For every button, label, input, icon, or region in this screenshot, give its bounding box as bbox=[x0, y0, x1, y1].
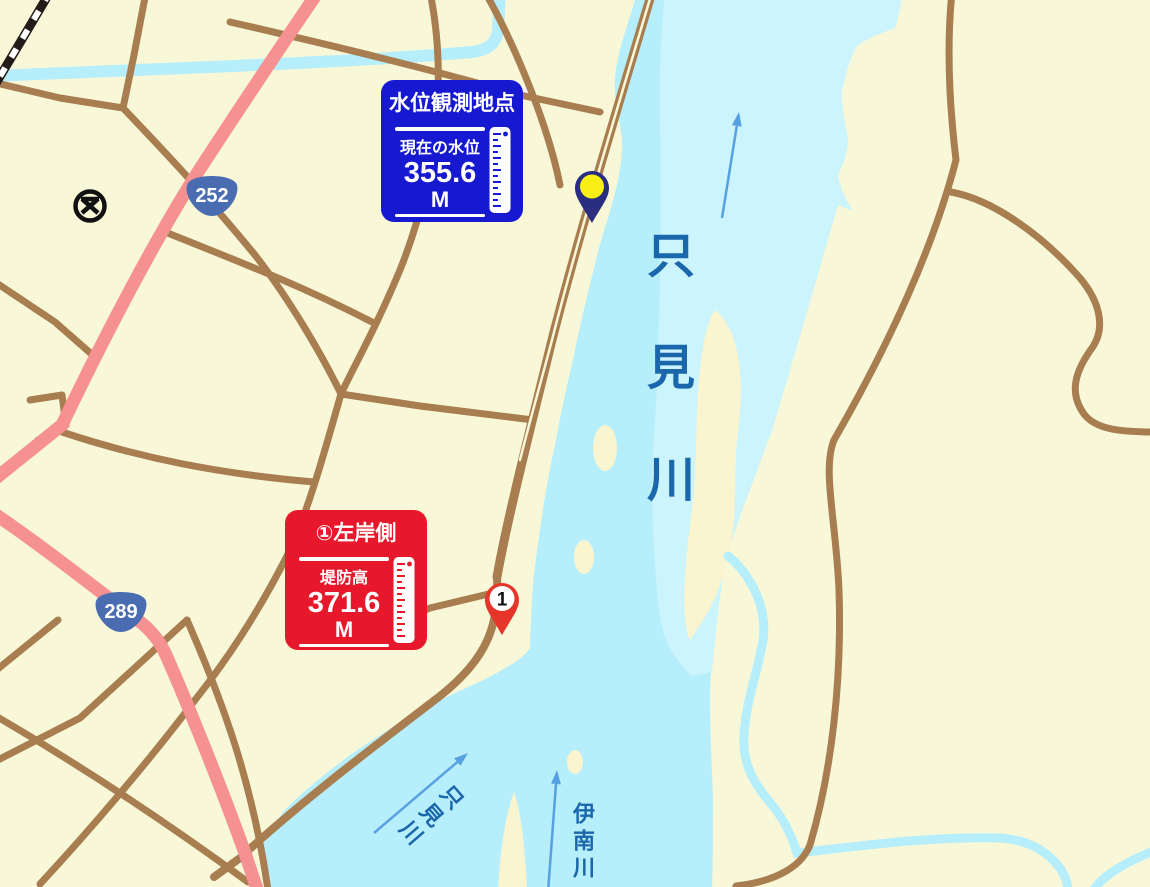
sandbar bbox=[593, 425, 617, 471]
road bbox=[62, 432, 314, 482]
map-symbol-icon bbox=[76, 192, 105, 221]
divider bbox=[395, 127, 485, 131]
info-box-title: 水位観測地点 bbox=[381, 87, 523, 117]
road bbox=[0, 280, 96, 358]
route-badge-252: 252 bbox=[184, 174, 240, 218]
divider bbox=[299, 644, 389, 648]
levee-height-info-box: ①左岸側 堤防高 371.6 M bbox=[285, 510, 427, 650]
stream bbox=[728, 556, 1068, 887]
road bbox=[160, 230, 372, 322]
sandbar bbox=[574, 540, 594, 574]
river-label-ina-branch: 伊南川 bbox=[566, 802, 598, 883]
flood-map-view: 只見川 只見川 伊南川 252 289 1 水位観測地点 bbox=[0, 0, 1150, 887]
ruler-icon bbox=[392, 557, 416, 643]
stream bbox=[1092, 850, 1150, 887]
divider bbox=[299, 557, 389, 561]
route-badge-289: 289 bbox=[93, 590, 149, 634]
route-number: 252 bbox=[195, 185, 228, 207]
ruler-icon bbox=[488, 127, 512, 213]
observation-point-pin[interactable] bbox=[575, 171, 609, 228]
info-box-title: ①左岸側 bbox=[285, 517, 427, 547]
water-level-unit: M bbox=[431, 189, 449, 211]
road bbox=[0, 82, 123, 108]
road bbox=[123, 0, 146, 108]
river-label-tadami: 只見川 bbox=[630, 230, 700, 566]
stream bbox=[0, 0, 500, 76]
road bbox=[951, 192, 1150, 432]
pin-number: 1 bbox=[497, 590, 508, 611]
divider bbox=[395, 214, 485, 218]
road bbox=[0, 620, 58, 672]
water-level-value: 355.6 bbox=[404, 159, 477, 188]
levee-height-unit: M bbox=[335, 619, 353, 641]
route-number: 289 bbox=[104, 601, 137, 623]
sandbar bbox=[567, 750, 583, 774]
location-pin-icon: 1 bbox=[485, 583, 519, 635]
water-level-label: 現在の水位 bbox=[400, 134, 480, 158]
road bbox=[341, 394, 533, 420]
water-level-info-box: 水位観測地点 現在の水位 355.6 M bbox=[381, 80, 523, 222]
route-roads bbox=[0, 0, 318, 887]
levee-height-value: 371.6 bbox=[308, 589, 381, 618]
levee-height-label: 堤防高 bbox=[320, 564, 368, 588]
map-canvas[interactable] bbox=[0, 0, 1150, 887]
location-pin-icon bbox=[575, 171, 609, 223]
levee-point-pin[interactable]: 1 bbox=[485, 583, 519, 640]
road bbox=[0, 715, 248, 882]
